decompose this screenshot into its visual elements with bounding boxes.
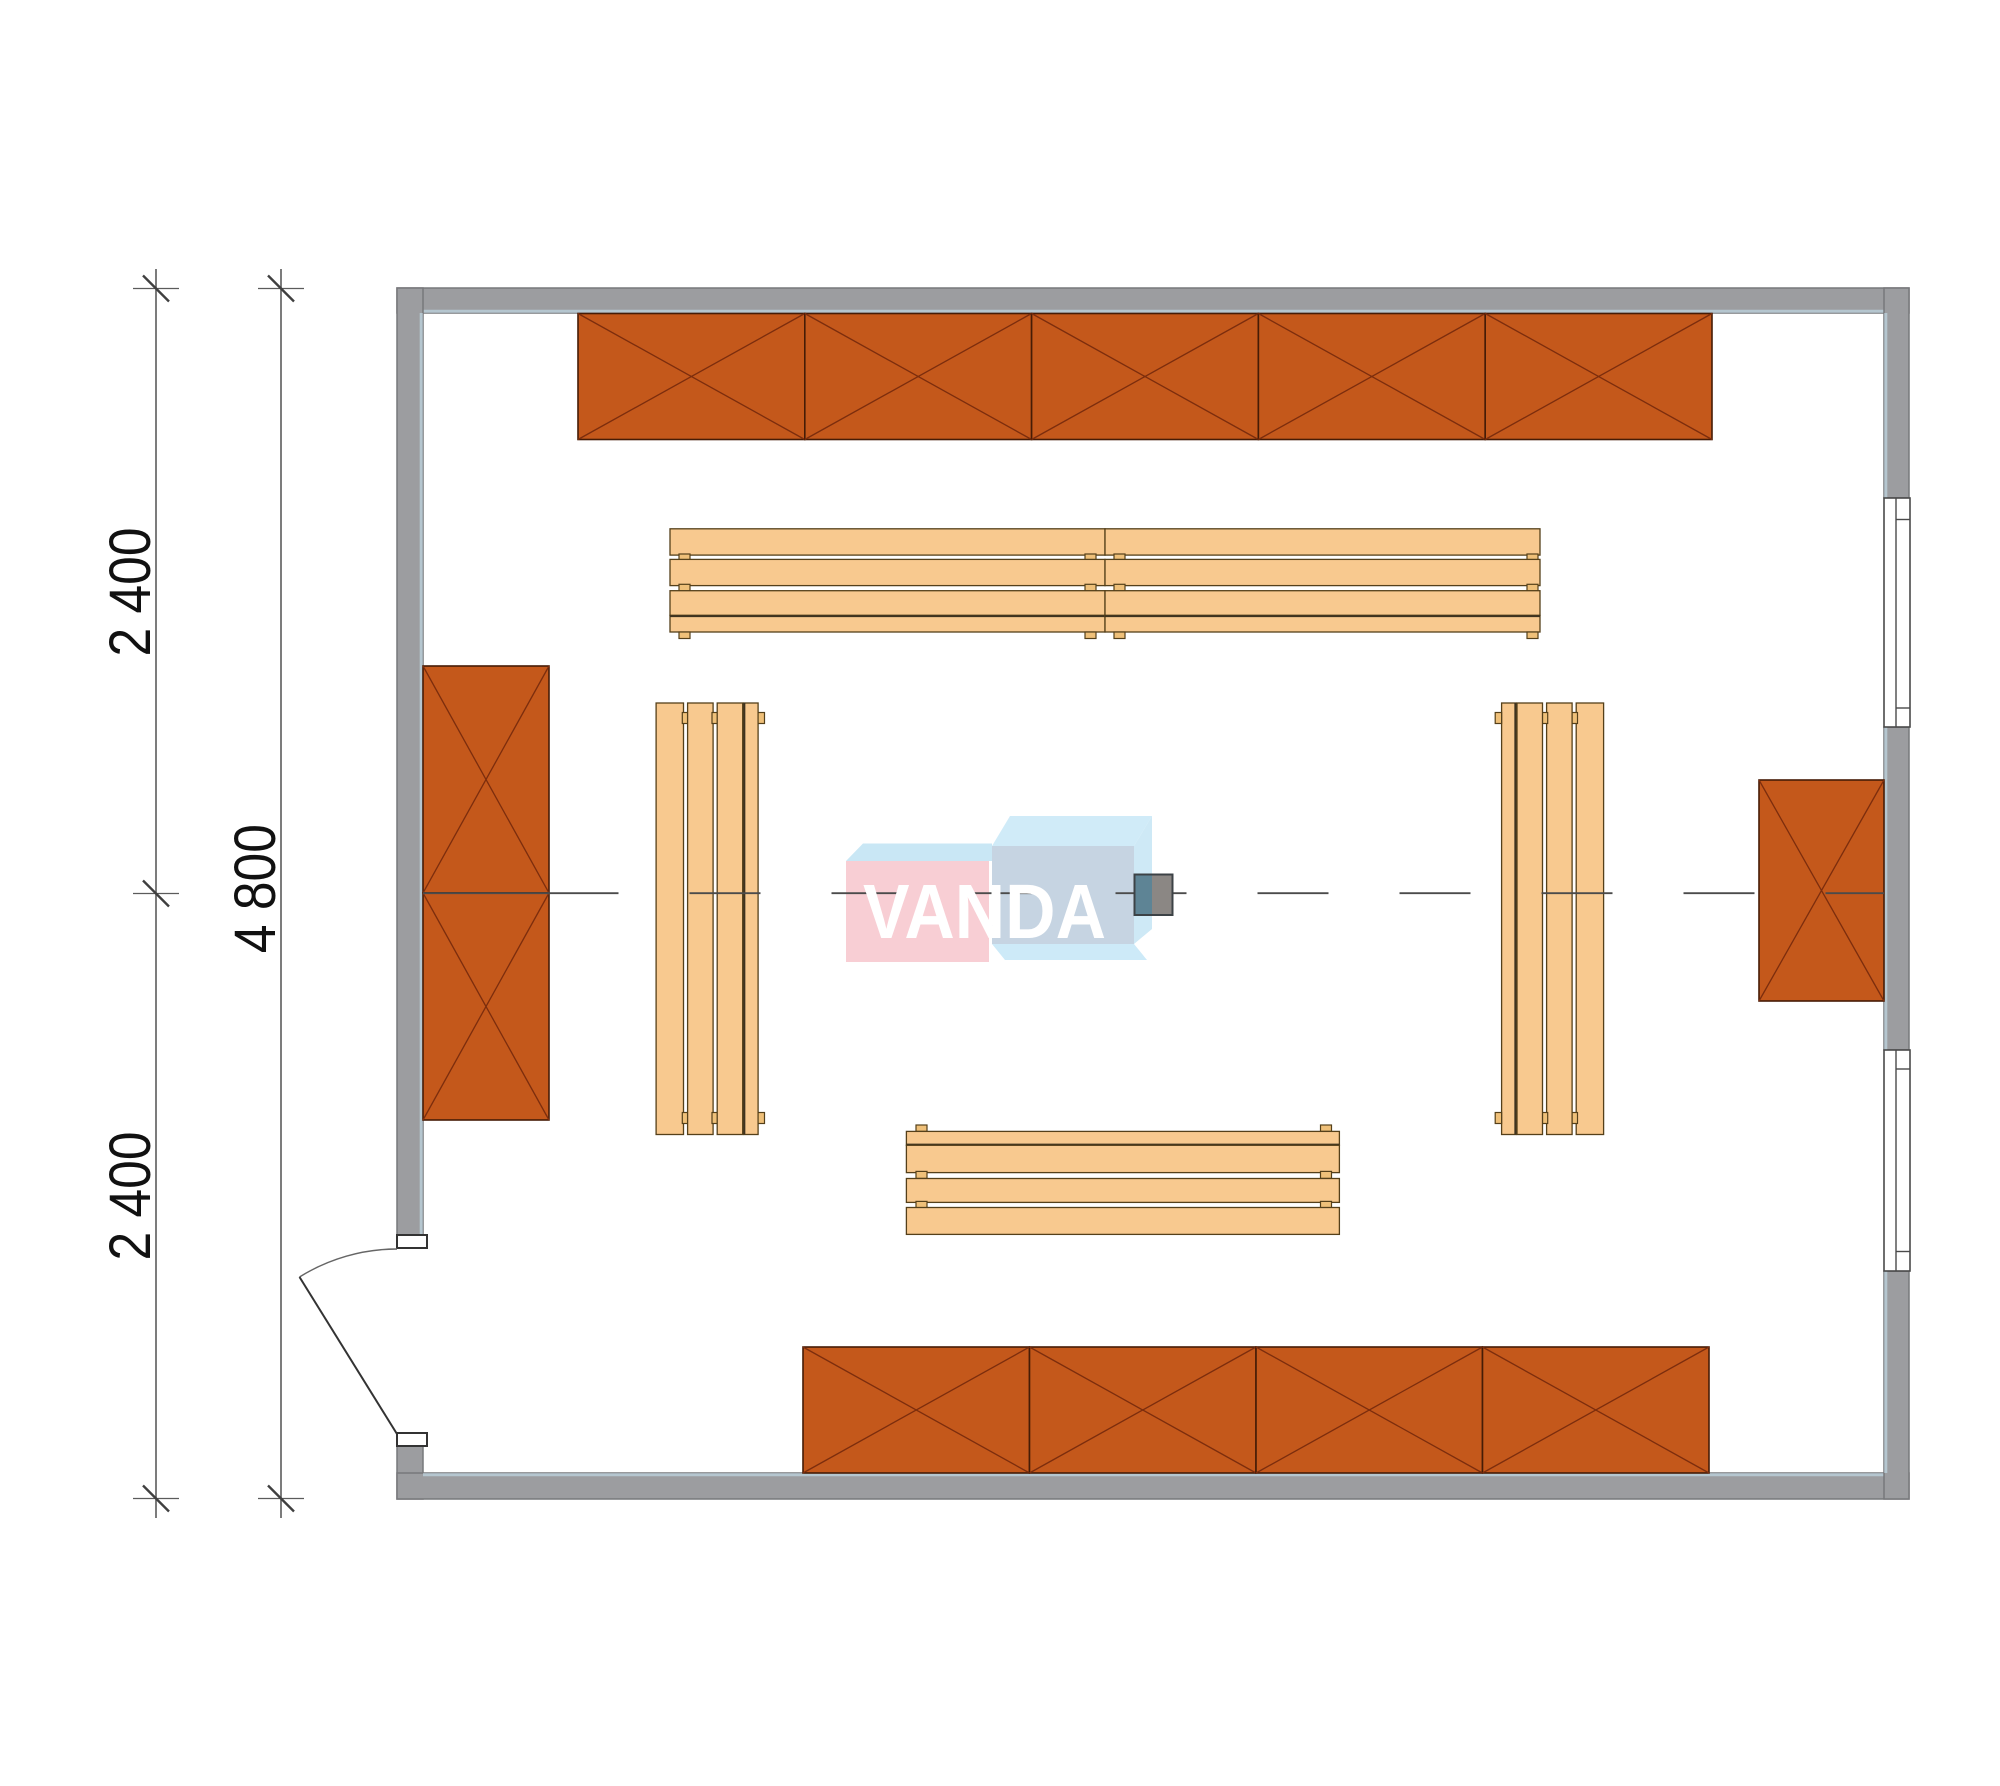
svg-text:4 800: 4 800 <box>223 824 288 953</box>
svg-text:2 400: 2 400 <box>98 1132 163 1261</box>
svg-text:2 400: 2 400 <box>98 528 163 657</box>
svg-text:VANDA: VANDA <box>863 869 1106 955</box>
